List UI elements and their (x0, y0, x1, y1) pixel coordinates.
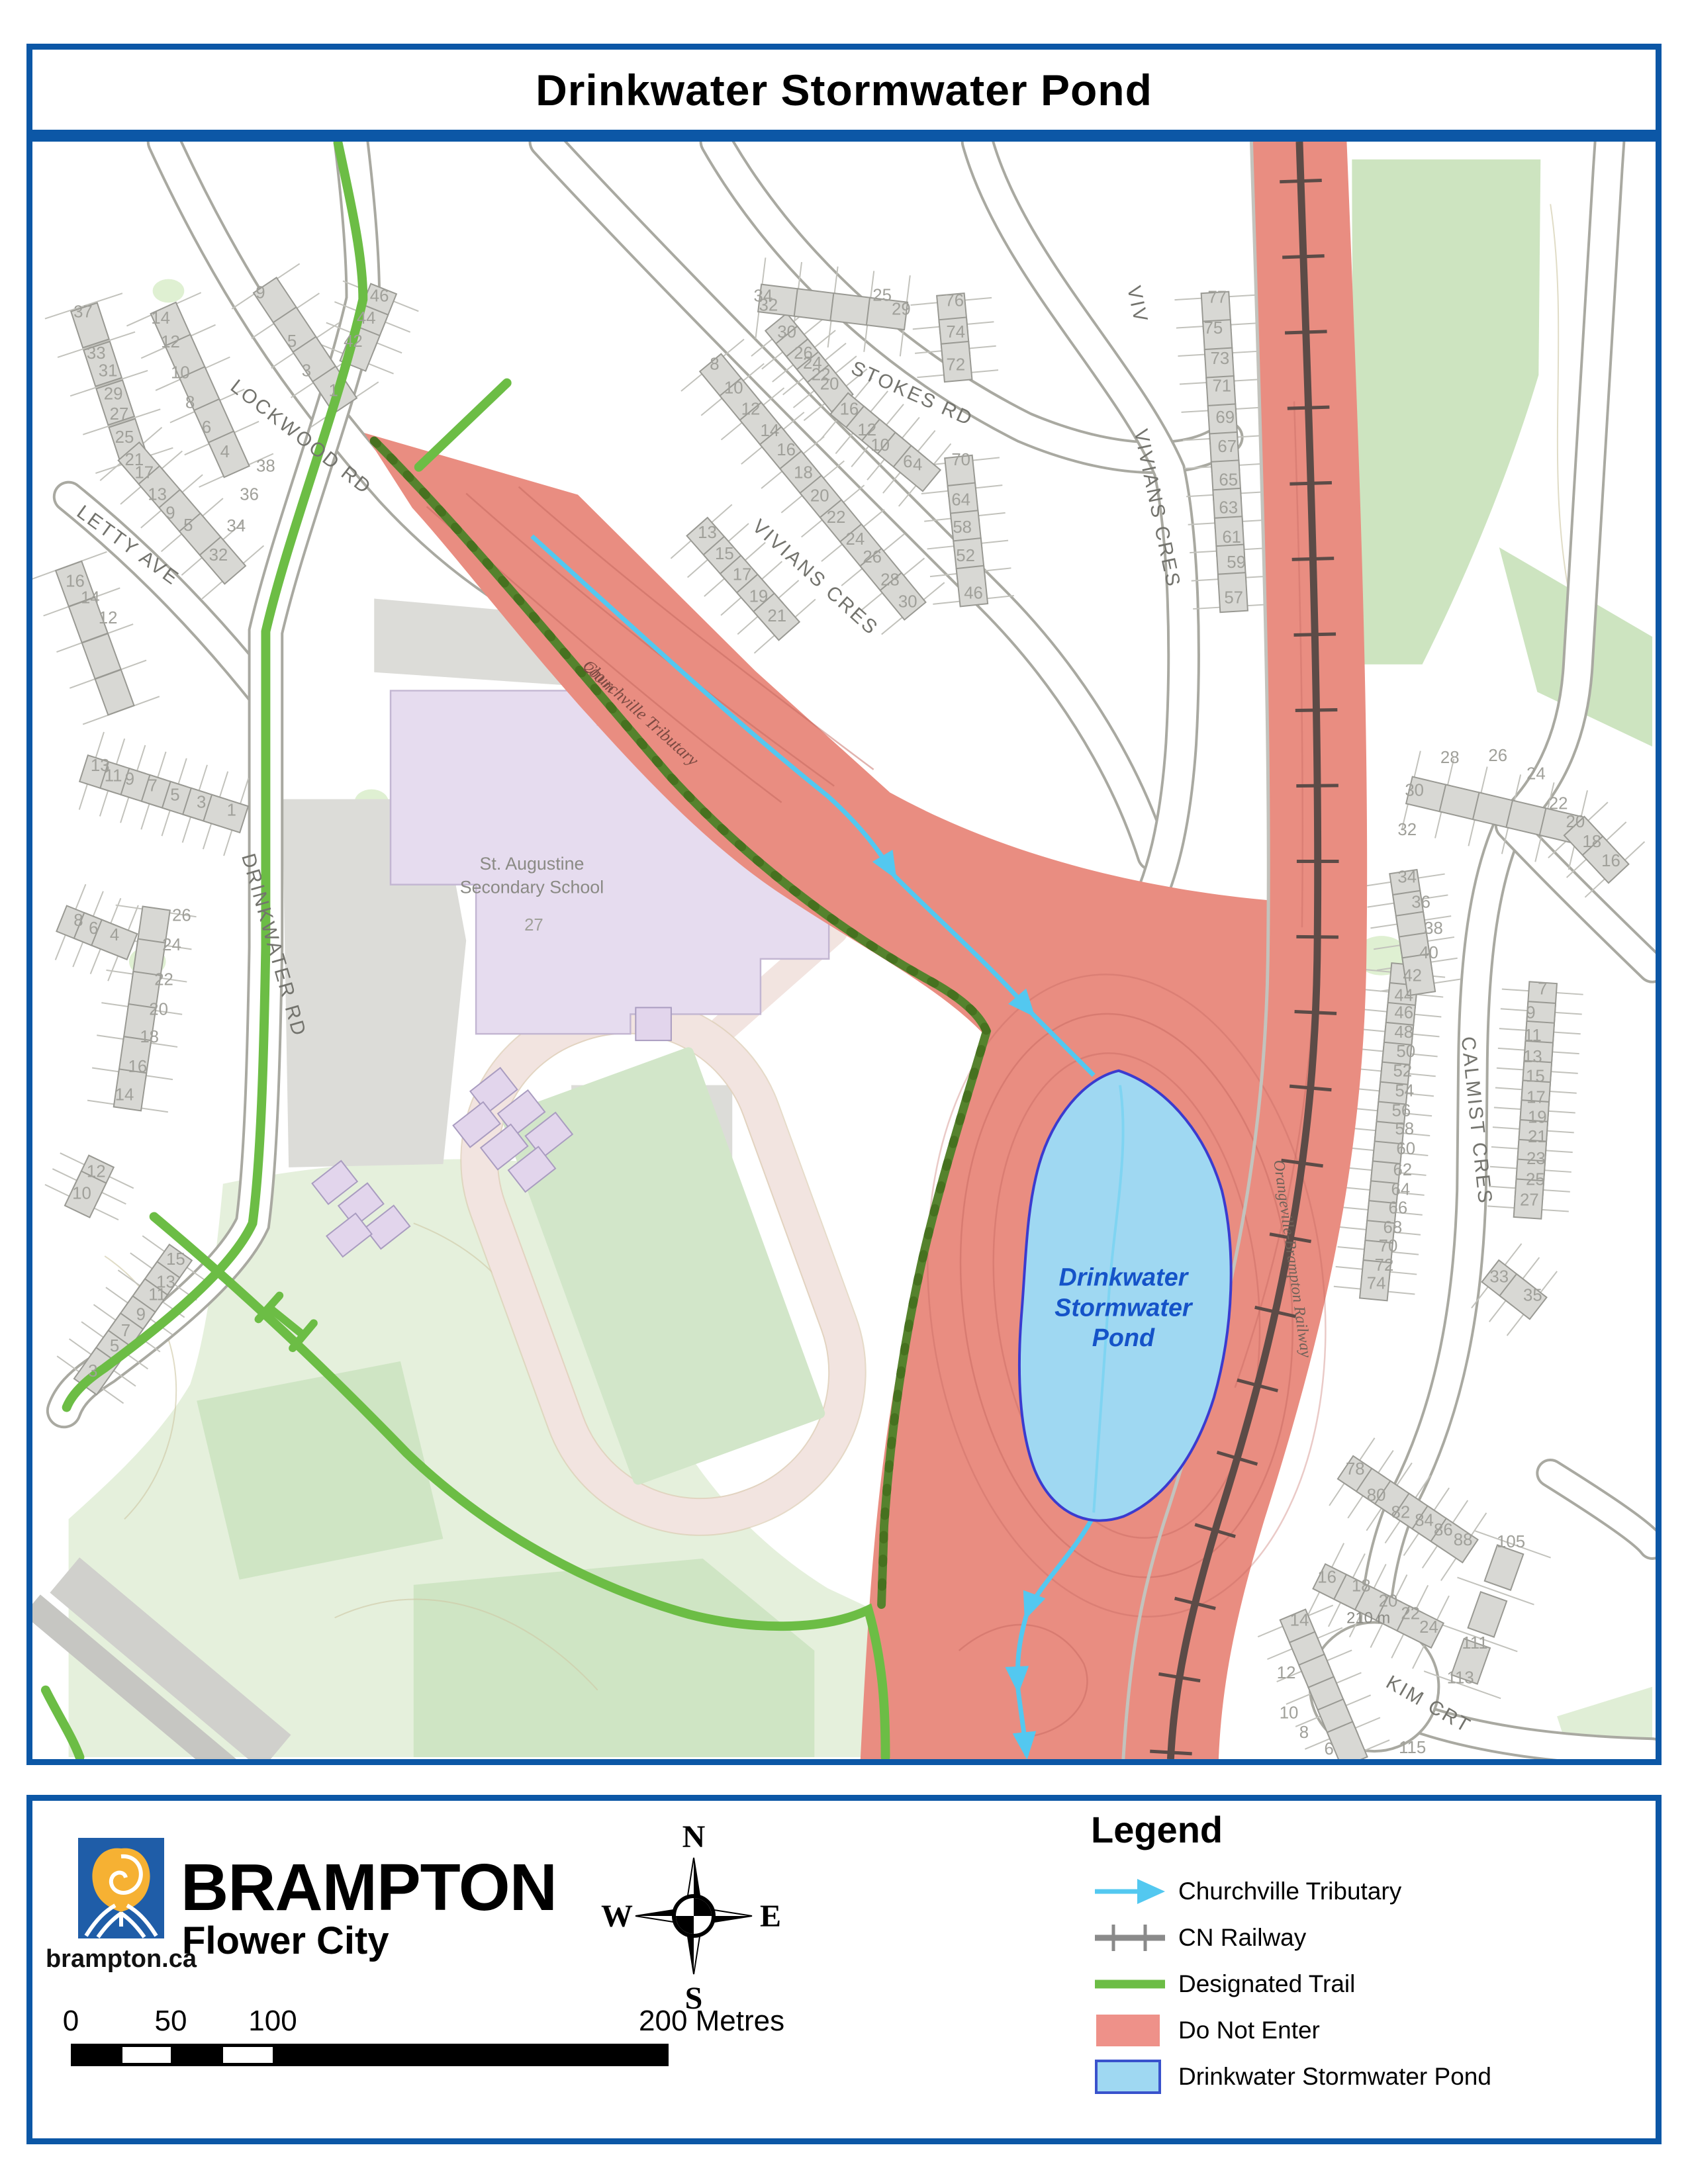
house-number: 9 (136, 1305, 146, 1324)
house-number: 15 (166, 1250, 185, 1269)
house-number: 115 (1399, 1739, 1426, 1757)
trail-icon (1091, 1966, 1169, 2002)
house-number: 16 (1601, 852, 1620, 870)
house-number: 16 (66, 572, 85, 591)
house-number: 9 (1526, 1003, 1535, 1022)
house-number: 60 (1396, 1140, 1415, 1158)
house-number: 37 (73, 302, 93, 321)
legend-title: Legend (1091, 1808, 1647, 1851)
house-number: 3 (88, 1362, 97, 1381)
house-number: 10 (72, 1185, 91, 1203)
house-number: 4 (220, 443, 230, 461)
house-number: 86 (1434, 1521, 1453, 1539)
house-number: 17 (1526, 1088, 1546, 1107)
house-number: 10 (171, 364, 190, 383)
house-number: 20 (820, 375, 839, 394)
house-number: 113 (1447, 1669, 1474, 1688)
house-number: 68 (1383, 1218, 1403, 1237)
house-number: 20 (1566, 813, 1585, 831)
compass-e: E (760, 1899, 781, 1934)
house-number: 46 (964, 584, 983, 602)
house-number: 8 (185, 393, 195, 412)
house-number: 36 (1411, 893, 1430, 911)
house-number: 58 (953, 518, 972, 537)
house-number: 7 (121, 1322, 130, 1340)
school-label: St. Augustine (480, 854, 585, 874)
house-number: 8 (710, 355, 719, 374)
house-number: 24 (1526, 765, 1546, 784)
house-number: 21 (1528, 1128, 1547, 1146)
railway-icon (1091, 1920, 1169, 1956)
scale-label: 0 (63, 2005, 79, 2037)
house-number: 6 (903, 453, 912, 471)
house-number: 52 (956, 547, 975, 565)
house-number: 20 (149, 1000, 168, 1019)
house-number: 35 (1523, 1287, 1542, 1305)
house-number: 21 (767, 607, 786, 625)
house-number: 24 (1419, 1618, 1438, 1637)
house-number: 77 (1208, 288, 1227, 306)
house-number: 28 (1440, 749, 1460, 767)
house-number: 25 (872, 286, 892, 304)
house-number: 9 (125, 770, 134, 789)
house-number: 6 (202, 418, 211, 437)
scale-label: 50 (155, 2005, 187, 2037)
house-number: 14 (115, 1086, 134, 1105)
scale-label: 100 (248, 2005, 297, 2037)
tree-blob (153, 279, 185, 303)
house-number: 11 (105, 767, 122, 786)
house-number: 52 (1393, 1062, 1412, 1081)
house-number: 44 (1394, 986, 1413, 1005)
house-number: 16 (840, 400, 859, 418)
house-number: 9 (165, 504, 175, 522)
house-number: 8 (1299, 1723, 1309, 1742)
house-number: 14 (151, 309, 170, 328)
house-number: 26 (172, 906, 191, 925)
house-number: 26 (1488, 747, 1507, 765)
tributary-icon (1091, 1874, 1169, 1909)
house-number: 57 (1224, 588, 1243, 607)
house-number: 14 (760, 422, 779, 440)
house-number: 4 (110, 926, 119, 944)
house-number: 78 (1346, 1460, 1365, 1479)
pond-label: Pond (1092, 1324, 1155, 1351)
compass-n: N (682, 1819, 706, 1854)
house-number: 74 (946, 323, 965, 341)
house-number: 70 (951, 451, 970, 469)
house-number: 72 (946, 356, 965, 375)
house-number: 31 (99, 362, 118, 381)
legend-item-trail: Designated Trail (1091, 1961, 1647, 2007)
house-number: 5 (110, 1337, 119, 1355)
house-number: 42 (1403, 967, 1422, 985)
house-number: 64 (1391, 1181, 1410, 1199)
house-number: 32 (759, 296, 778, 314)
map-frame: LOCKWOOD RDLETTY AVESTOKES RDVIVIANS CRE… (26, 136, 1662, 1765)
legend-label: Drinkwater Stormwater Pond (1178, 2063, 1491, 2091)
house-number: 18 (140, 1028, 159, 1046)
house-number: 1 (227, 801, 236, 819)
house-number: 50 (1396, 1042, 1415, 1061)
brand-tagline: Flower City (182, 1919, 389, 1962)
house-number: 69 (1215, 408, 1235, 427)
house-number: 6 (89, 919, 98, 938)
brampton-logo-icon (78, 1838, 164, 1938)
house-number: 105 (1497, 1533, 1525, 1551)
house-number: 12 (741, 400, 761, 418)
pond-label: Stormwater (1055, 1293, 1194, 1321)
house-number: 58 (1395, 1120, 1414, 1138)
house-number: 70 (1379, 1237, 1398, 1255)
house-number: 30 (1405, 782, 1424, 800)
house-number: 17 (733, 566, 752, 584)
house-number: 25 (1526, 1171, 1545, 1189)
house-number: 111 (1462, 1634, 1487, 1653)
house-number: 20 (810, 486, 829, 505)
house-number: 80 (1367, 1486, 1386, 1505)
house-number: 40 (1419, 944, 1438, 962)
house-number: 64 (951, 490, 970, 509)
house-number: 8 (73, 911, 83, 930)
house-number: 24 (162, 936, 181, 954)
house-number: 22 (827, 508, 846, 527)
house-number: 46 (370, 287, 389, 305)
scale-label: 200 Metres (639, 2005, 784, 2037)
house-number: 5 (287, 332, 297, 351)
house-number: 48 (1394, 1023, 1413, 1042)
house-number: 27 (1520, 1191, 1539, 1209)
house-number: 74 (1367, 1275, 1386, 1293)
house-number: 12 (87, 1163, 106, 1181)
house-number: 33 (1489, 1268, 1509, 1287)
house-number: 18 (1582, 833, 1601, 851)
house-number: 11 (1524, 1026, 1542, 1045)
map-canvas: LOCKWOOD RDLETTY AVESTOKES RDVIVIANS CRE… (32, 142, 1656, 1759)
house-number: 23 (1526, 1150, 1546, 1168)
scale-bar-labels: 050100200 Metres (63, 2005, 784, 2037)
house-number: 62 (1393, 1161, 1412, 1179)
house-number: 27 (110, 405, 129, 424)
house-number: 33 (87, 344, 106, 363)
legend-label: CN Railway (1178, 1924, 1306, 1952)
house-number: 36 (240, 485, 259, 504)
house-number: 82 (1391, 1503, 1410, 1522)
compass-rose-icon: N S E W (601, 1819, 781, 2016)
house-number: 30 (898, 592, 917, 611)
house-number: 26 (863, 548, 882, 567)
house-number: 22 (1401, 1604, 1420, 1623)
house-number: 16 (128, 1058, 147, 1076)
house-number: 16 (1317, 1569, 1336, 1587)
compass-w: W (601, 1899, 633, 1934)
house-number: 12 (1277, 1664, 1296, 1682)
house-number: 71 (1212, 377, 1231, 396)
house-number: 20 (1379, 1592, 1398, 1611)
house-number: 18 (794, 464, 813, 482)
house-number: 75 (1204, 319, 1223, 338)
legend-item-tributary: Churchville Tributary (1091, 1868, 1647, 1915)
house-number: 34 (1397, 868, 1417, 887)
legend-label: Designated Trail (1178, 1970, 1355, 1998)
house-number: 7 (1538, 980, 1547, 999)
house-number: 13 (698, 523, 717, 542)
house-number: 18 (1352, 1577, 1371, 1596)
house-number: 63 (1219, 498, 1238, 517)
house-number: 12 (161, 333, 180, 351)
page-title: Drinkwater Stormwater Pond (536, 65, 1152, 115)
house-number: 28 (880, 571, 900, 590)
house-number: 29 (104, 385, 123, 403)
house-number: 24 (846, 530, 865, 549)
house-number: 5 (170, 786, 179, 804)
house-number: 38 (256, 457, 275, 476)
house-number: 73 (1210, 349, 1229, 368)
house-number: 10 (1280, 1704, 1299, 1722)
brand-name: BRAMPTON (181, 1850, 557, 1925)
house-number: 44 (357, 309, 376, 328)
house-number: 3 (302, 362, 311, 381)
title-bar: Drinkwater Stormwater Pond (26, 44, 1662, 136)
house-number: 42 (344, 332, 363, 351)
legend-item-pond-fill: Drinkwater Stormwater Pond (1091, 2054, 1647, 2100)
house-number: 84 (1415, 1511, 1434, 1529)
house-number: 38 (1424, 919, 1443, 938)
house-number: 32 (209, 546, 228, 565)
house-number: 15 (1526, 1068, 1545, 1086)
legend-item-red-fill: Do Not Enter (1091, 2007, 1647, 2054)
house-number: 16 (776, 441, 796, 459)
house-number: 14 (1290, 1611, 1309, 1629)
house-number: 67 (1217, 437, 1237, 456)
house-number: 3 (197, 793, 206, 811)
pond-fill-icon (1091, 2059, 1169, 2095)
house-number: 32 (1397, 821, 1417, 839)
house-number: 17 (134, 464, 154, 482)
house-number: 15 (715, 545, 734, 563)
house-number: 10 (870, 436, 890, 455)
house-number: 65 (1219, 471, 1238, 490)
house-number: 13 (148, 485, 167, 504)
page: Drinkwater Stormwater Pond (0, 0, 1688, 2184)
house-number: 12 (99, 609, 118, 627)
house-number: 59 (1227, 553, 1246, 572)
legend-item-railway: CN Railway (1091, 1915, 1647, 1961)
house-number: 19 (1528, 1108, 1547, 1126)
house-number: 11 (148, 1286, 166, 1304)
house-number: 1 (328, 381, 338, 400)
house-number: 22 (154, 971, 173, 989)
house-number: 66 (1389, 1199, 1408, 1217)
house-number: 30 (777, 323, 796, 341)
house-number: 34 (226, 517, 246, 535)
house-number: 7 (148, 777, 157, 796)
house-number: 76 (945, 291, 964, 310)
scale-bar (71, 2044, 669, 2066)
house-number: 9 (256, 283, 265, 302)
house-number: 14 (81, 588, 100, 607)
house-number: 6 (1324, 1740, 1333, 1758)
house-number: 61 (1222, 528, 1241, 547)
legend: Legend Churchville TributaryCN RailwayDe… (1091, 1808, 1647, 2100)
red-fill-icon (1091, 2013, 1169, 2048)
house-number: 10 (724, 379, 743, 398)
house-number: 19 (749, 587, 769, 606)
house-number: 22 (1549, 794, 1568, 813)
brampton-url: brampton.ca (46, 1945, 197, 1973)
house-number: 25 (115, 428, 134, 447)
house-number: 13 (1523, 1048, 1542, 1066)
legend-label: Churchville Tributary (1178, 1878, 1401, 1905)
legend-label: Do Not Enter (1178, 2017, 1320, 2044)
school-number: 27 (524, 916, 543, 934)
house-number: 88 (1454, 1531, 1473, 1549)
house-number: 54 (1395, 1082, 1414, 1101)
house-number: 46 (1394, 1003, 1413, 1022)
house-number: 4 (913, 456, 922, 475)
pond-label: Drinkwater (1058, 1263, 1189, 1291)
house-number: 72 (1375, 1256, 1394, 1275)
house-number: 29 (892, 300, 911, 318)
school-label: Secondary School (460, 878, 604, 897)
house-number: 5 (183, 516, 193, 535)
house-number: 56 (1391, 1101, 1411, 1120)
elevation-label: 210 m (1346, 1609, 1390, 1627)
